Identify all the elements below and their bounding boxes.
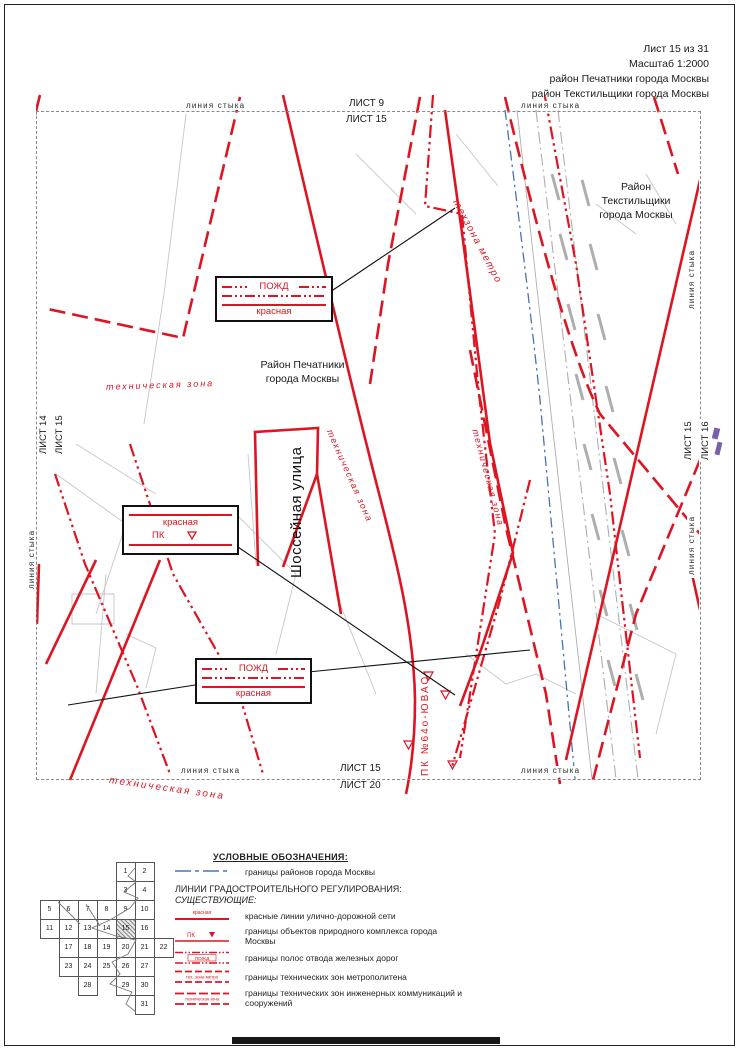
seam-label-bottom-right: линия стыка (518, 766, 583, 775)
sheet-cell-31: 31 (135, 995, 155, 1015)
district-label-pechatniki: Район Печатники города Москвы (245, 358, 360, 386)
sheet-cell-1: 1 (116, 862, 136, 882)
sheet-cell-14: 14 (97, 919, 117, 939)
title-block: Лист 15 из 31 Масштаб 1:2000 район Печат… (532, 42, 709, 102)
district-label-tekstilshchiki: Район Текстильщики города Москвы (586, 180, 686, 222)
seam-label-left: линия стыка (27, 527, 36, 592)
callout-pozhd-top-text: ПОЖД (217, 281, 331, 292)
sheet-cell-9: 9 (116, 900, 136, 920)
sheet-cell-2: 2 (135, 862, 155, 882)
sheet-cell-10: 10 (135, 900, 155, 920)
seam-label-right-top: линия стыка (687, 247, 696, 312)
sheet-label-bottom-below: ЛИСТ 20 (338, 780, 383, 791)
callout-pozhd-bottom: ПОЖД красная (195, 658, 312, 704)
callout-pozhd-top: ПОЖД красная (215, 276, 333, 322)
sheet-cell-23: 23 (59, 957, 79, 977)
pozhd-symbol: ПОЖД (175, 950, 229, 965)
purple-mark-2 (715, 442, 723, 456)
callout-krasnaya-text: красная (124, 517, 237, 528)
svg-text:ПОЖД: ПОЖД (195, 956, 211, 962)
pk-triangle-icon (188, 532, 196, 539)
legend-heading-2: СУЩЕСТВУЮЩИЕ: (175, 895, 475, 905)
legend-title: УСЛОВНЫЕ ОБОЗНАЧЕНИЯ: (213, 852, 475, 862)
sheet-cell-4: 4 (135, 881, 155, 901)
sheet-cell-28: 28 (78, 976, 98, 996)
sheet-cell-22: 22 (154, 938, 174, 958)
legend-item-metro-zone: тех. зона метро границы технических зон … (175, 969, 475, 984)
seam-label-bottom-left: линия стыка (178, 766, 243, 775)
metro-zone-symbol: тех. зона метро (175, 969, 229, 984)
sheet-index-grid: 1234567891011121314151617181920212223242… (40, 862, 173, 1014)
scale: Масштаб 1:2000 (532, 57, 709, 72)
sheet-cell-7: 7 (78, 900, 98, 920)
sheet-cell-18: 18 (78, 938, 98, 958)
sheet-cell-19: 19 (97, 938, 117, 958)
sheet-label-right-outer: ЛИСТ 16 (700, 419, 711, 462)
legend-item-red-line: красная красные линии улично-дорожной се… (175, 909, 475, 922)
purple-mark-1 (712, 427, 720, 439)
callout-pozhd-bottom-text: ПОЖД (197, 663, 310, 674)
callout-pozhd-bottom-subtext: красная (197, 688, 310, 699)
seam-label-right-bottom: линия стыка (687, 513, 696, 578)
pk-number-label: ПК №64о-ЮВАО (420, 675, 431, 776)
sheet-number: Лист 15 из 31 (532, 42, 709, 57)
svg-text:тех. зона метро: тех. зона метро (186, 975, 219, 980)
callout-krasnaya-pk-symbol (124, 507, 237, 553)
legend-heading-1: ЛИНИИ ГРАДОСТРОИТЕЛЬНОГО РЕГУЛИРОВАНИЯ: (175, 884, 475, 894)
sheet-cell-24: 24 (78, 957, 98, 977)
map-sheet-page: Лист 15 из 31 Масштаб 1:2000 район Печат… (0, 0, 739, 1050)
sheet-cell-27: 27 (135, 957, 155, 977)
sheet-label-top-above: ЛИСТ 9 (347, 98, 386, 109)
pk-triangle-icon (209, 932, 215, 938)
sheet-label-bottom-above: ЛИСТ 15 (338, 763, 383, 774)
sheet-cell-30: 30 (135, 976, 155, 996)
callout-krasnaya-pk: красная ПК (122, 505, 239, 555)
sheet-cell-15: 15 (116, 919, 136, 939)
svg-text:ПК: ПК (187, 933, 195, 939)
seam-label-top-left: линия стыка (183, 101, 248, 110)
sheet-cell-16: 16 (135, 919, 155, 939)
sheet-cell-3: 3 (116, 881, 136, 901)
sheet-cell-21: 21 (135, 938, 155, 958)
sheet-cell-8: 8 (97, 900, 117, 920)
sheet-label-right-inner: ЛИСТ 15 (683, 419, 694, 462)
red-line-symbol: красная (175, 909, 229, 922)
sheet-cell-5: 5 (40, 900, 60, 920)
district-boundary-symbol (175, 866, 229, 878)
sheet-cell-12: 12 (59, 919, 79, 939)
sheet-label-left-inner: ЛИСТ 15 (54, 413, 65, 456)
sheet-cell-20: 20 (116, 938, 136, 958)
pk-symbol: ПК (175, 930, 229, 943)
legend-item-pozhd: ПОЖД границы полос отвода железных дорог (175, 950, 475, 965)
legend-item-pk: ПК границы объектов природного комплекса… (175, 926, 475, 946)
sheet-cell-29: 29 (116, 976, 136, 996)
sheet-cell-25: 25 (97, 957, 117, 977)
seam-label-top-right: линия стыка (518, 101, 583, 110)
callout-pk-text: ПК (152, 530, 164, 541)
sheet-cell-26: 26 (116, 957, 136, 977)
callout-pozhd-top-subtext: красная (217, 306, 331, 317)
legend-item-district-boundary: границы районов города Москвы (175, 866, 475, 878)
tech-zone-symbol: техническая зона (175, 991, 229, 1006)
sheet-label-top-below: ЛИСТ 15 (344, 114, 389, 125)
svg-text:техническая зона: техническая зона (185, 996, 220, 1001)
sheet-cell-13: 13 (78, 919, 98, 939)
bottom-scan-bar (232, 1037, 500, 1044)
legend: УСЛОВНЫЕ ОБОЗНАЧЕНИЯ: границы районов го… (175, 852, 475, 1008)
street-label: Шоссейная улица (288, 447, 305, 578)
sheet-cell-6: 6 (59, 900, 79, 920)
sheet-cell-11: 11 (40, 919, 60, 939)
sheet-label-left-outer: ЛИСТ 14 (38, 413, 49, 456)
legend-item-tech-zone: техническая зона границы технических зон… (175, 988, 475, 1008)
sheet-cell-17: 17 (59, 938, 79, 958)
svg-text:красная: красная (193, 910, 212, 916)
district-line-1: район Печатники города Москвы (532, 72, 709, 87)
